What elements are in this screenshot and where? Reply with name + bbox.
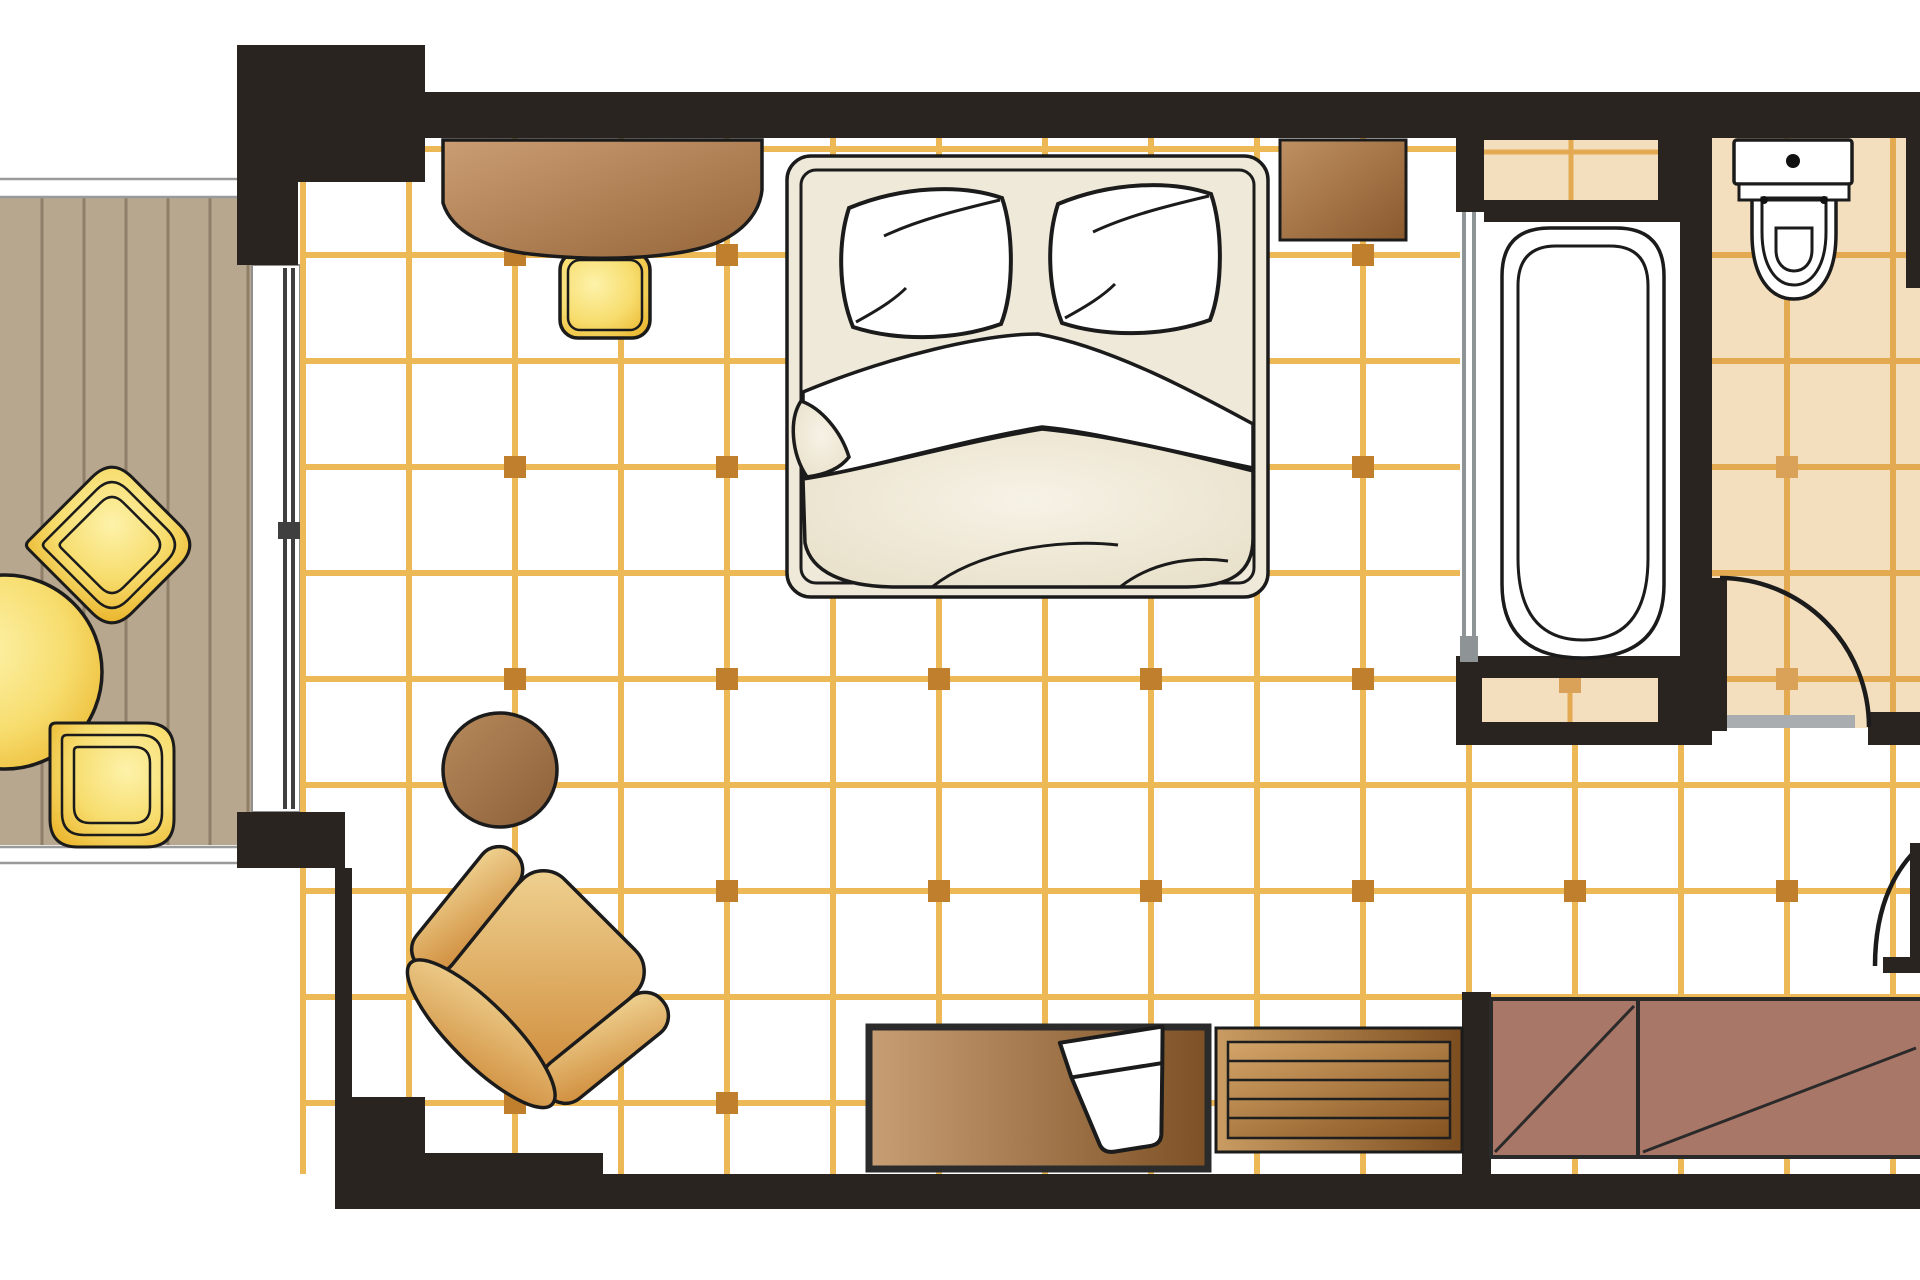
tile-grid-square xyxy=(1352,244,1374,266)
stool-outer xyxy=(560,252,650,338)
wardrobe xyxy=(1491,999,1920,1157)
bench-slats xyxy=(1228,1042,1450,1138)
toilet-hinge-left xyxy=(1760,196,1768,204)
tile-grid-square xyxy=(716,244,738,266)
tile-grid-square xyxy=(928,668,950,690)
side-table xyxy=(443,713,557,827)
tile-grid-square xyxy=(716,668,738,690)
chair-shell-outer xyxy=(50,723,174,847)
bathtub-outer xyxy=(1502,228,1664,658)
tile-grid-square xyxy=(1140,880,1162,902)
tile-grid-square xyxy=(1140,668,1162,690)
wall-right-fragment xyxy=(1906,128,1920,288)
wall-bottom-left-bar xyxy=(237,812,345,868)
tile-grid-square xyxy=(716,456,738,478)
wall-bathdoor-stub xyxy=(1868,712,1920,745)
toilet-flush-dot xyxy=(1786,154,1800,168)
wall-top-band xyxy=(237,92,1920,138)
glass-end-cap xyxy=(1460,636,1478,662)
luggage-bench xyxy=(1216,1028,1462,1152)
wardrobe-body xyxy=(1491,999,1920,1157)
wall-bottom-step2 xyxy=(425,1153,603,1209)
bathroom-threshold xyxy=(1727,715,1855,728)
wall-bottom-step1 xyxy=(335,1097,425,1209)
wall-alcove-right xyxy=(1680,138,1712,745)
tile-grid-square xyxy=(1776,668,1798,690)
entrance-door-stub xyxy=(1883,957,1920,973)
desk-stool xyxy=(560,252,650,338)
pillow-left xyxy=(841,189,1011,337)
tile-grid-square xyxy=(716,1092,738,1114)
window-band xyxy=(252,265,300,812)
tub-niche-bottom xyxy=(1482,678,1658,722)
wall-wardrobe-stub xyxy=(1462,992,1491,1208)
entrance-door-leaf xyxy=(1910,843,1920,969)
tile-grid-square xyxy=(716,880,738,902)
tile-grid-square xyxy=(1776,880,1798,902)
tub-niche-top xyxy=(1484,140,1658,200)
tile-grid-square xyxy=(504,668,526,690)
wall-left-lower xyxy=(335,868,352,1100)
window-mullion xyxy=(278,522,300,539)
glass-line-a xyxy=(1462,212,1466,662)
balcony-chair-bottom xyxy=(50,723,174,847)
bathroom-door-leaf xyxy=(1712,578,1727,731)
wall-divider-top xyxy=(1456,138,1484,212)
desk xyxy=(443,140,762,258)
balcony-rail-bottom xyxy=(0,847,252,864)
tile-grid-square xyxy=(504,456,526,478)
glass-line-b xyxy=(1472,212,1476,662)
rail-top-fill xyxy=(0,179,252,197)
bathtub xyxy=(1502,228,1664,658)
bed xyxy=(787,156,1268,597)
wall-window-column xyxy=(237,182,298,265)
pillow-right xyxy=(1050,185,1220,333)
tile-grid-square xyxy=(928,880,950,902)
tile-grid-square xyxy=(1352,668,1374,690)
toilet-hinge-right xyxy=(1820,196,1828,204)
niche-bot-square xyxy=(1559,678,1581,693)
tile-grid-square xyxy=(1352,456,1374,478)
balcony-rail-top xyxy=(0,179,252,197)
nightstand xyxy=(1280,140,1406,240)
tile-grid-square xyxy=(1352,880,1374,902)
wall-bottom-band xyxy=(600,1174,1920,1209)
tile-grid-square xyxy=(1564,880,1586,902)
floor-plan xyxy=(0,0,1920,1280)
rail-bot-fill xyxy=(0,847,252,864)
floor-plan-svg xyxy=(0,0,1920,1280)
tile-grid-square xyxy=(1776,456,1798,478)
